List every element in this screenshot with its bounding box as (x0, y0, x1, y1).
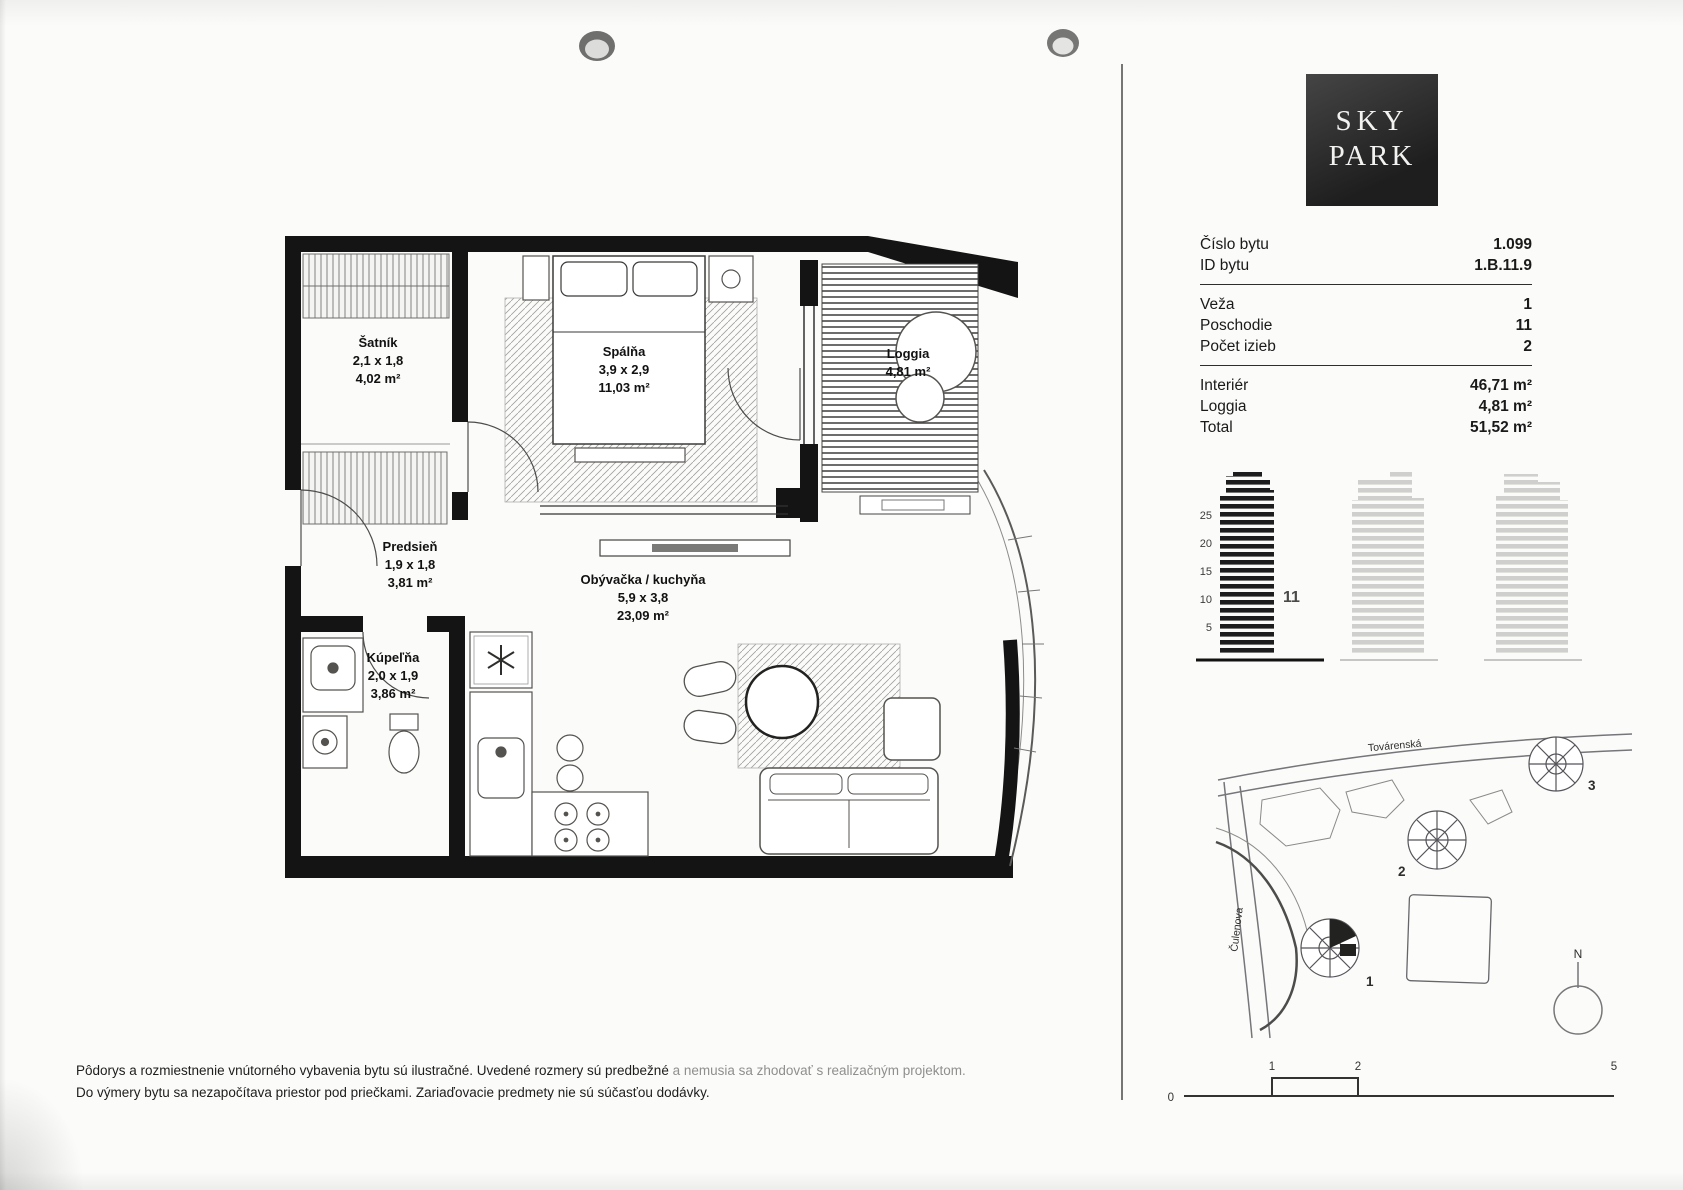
svg-text:3,86 m²: 3,86 m² (371, 686, 416, 701)
label-pocet-izieb: Počet izieb (1200, 336, 1276, 357)
label-poschodie: Poschodie (1200, 315, 1272, 336)
svg-text:Kúpeľňa: Kúpeľňa (367, 650, 420, 665)
map-tower-3-label: 3 (1588, 778, 1596, 793)
row-loggia: Loggia 4,81 m² (1200, 396, 1532, 417)
label-cislo-bytu: Číslo bytu (1200, 234, 1269, 255)
row-poschodie: Poschodie 11 (1200, 315, 1532, 336)
svg-text:Šatník: Šatník (358, 335, 398, 350)
elevation-axis: 25 20 15 10 5 (1200, 510, 1212, 634)
scale-bar-ticks: 0 1 2 5 (1168, 1061, 1618, 1104)
value-poschodie: 11 (1516, 315, 1532, 336)
floor-11-label: 11 (1283, 589, 1300, 606)
map-tower-1-label: 1 (1366, 974, 1374, 989)
svg-text:2: 2 (1355, 1061, 1361, 1073)
svg-text:1,9 x 1,8: 1,9 x 1,8 (385, 557, 436, 572)
label-veza: Veža (1200, 294, 1234, 315)
details-divider-1 (1200, 284, 1532, 285)
site-map: Továrenská Čulenova 1 2 3 N (1216, 734, 1632, 1038)
disclaimer-text: Pôdorys a rozmiestnenie vnútorného vybav… (76, 1060, 1136, 1104)
toilet (389, 731, 419, 773)
label-total: Total (1200, 417, 1233, 438)
label-loggia: Loggia (1200, 396, 1247, 417)
north-letter: N (1574, 947, 1583, 961)
svg-text:4,02 m²: 4,02 m² (356, 371, 401, 386)
value-pocet-izieb: 2 (1523, 336, 1532, 357)
svg-text:2,0 x 1,9: 2,0 x 1,9 (368, 668, 419, 683)
svg-text:0: 0 (1168, 1092, 1174, 1104)
curved-facade (974, 470, 1044, 868)
loggia-area (804, 264, 978, 514)
room-label-predsien: Predsieň 1,9 x 1,8 3,81 m² (383, 539, 438, 590)
toilet-tank (390, 714, 418, 730)
value-total: 51,52 m² (1470, 417, 1532, 438)
bedroom-furniture (505, 256, 790, 556)
room-label-kupelna: Kúpeľňa 2,0 x 1,9 3,86 m² (367, 650, 420, 701)
svg-text:1: 1 (1269, 1061, 1275, 1073)
tower-1-footprint (1301, 919, 1359, 977)
svg-text:20: 20 (1200, 538, 1212, 550)
details-divider-2 (1200, 365, 1532, 366)
disclaimer-line-1-faded: a nemusia sa zhodovať s realizačným proj… (673, 1063, 966, 1078)
value-cislo-bytu: 1.099 (1493, 234, 1532, 255)
value-interier: 46,71 m² (1470, 375, 1532, 396)
row-veza: Veža 1 (1200, 294, 1532, 315)
svg-text:Spálňa: Spálňa (603, 344, 646, 359)
svg-text:Obývačka / kuchyňa: Obývačka / kuchyňa (580, 572, 706, 587)
value-id-bytu: 1.B.11.9 (1474, 255, 1532, 276)
tower-2-footprint (1408, 811, 1466, 869)
hole-punch-left (579, 31, 615, 61)
logo-line-park: PARK (1306, 138, 1438, 174)
label-id-bytu: ID bytu (1200, 255, 1249, 276)
hole-punch-right (1047, 29, 1079, 57)
disclaimer-line-1: Pôdorys a rozmiestnenie vnútorného vybav… (76, 1060, 1136, 1082)
room-label-obyvacka: Obývačka / kuchyňa 5,9 x 3,8 23,09 m² (580, 572, 706, 623)
label-interier: Interiér (1200, 375, 1248, 396)
svg-text:Loggia: Loggia (887, 346, 930, 361)
svg-text:23,09 m²: 23,09 m² (617, 608, 670, 623)
north-compass: N (1554, 947, 1602, 1034)
dining-table (746, 666, 818, 738)
svg-text:5: 5 (1206, 622, 1212, 634)
dining-set (681, 644, 900, 768)
svg-text:4,81 m²: 4,81 m² (886, 364, 931, 379)
row-pocet-izieb: Počet izieb 2 (1200, 336, 1532, 357)
kitchen (470, 632, 648, 856)
logo-line-sky: SKY (1306, 104, 1438, 138)
svg-text:2,1 x 1,8: 2,1 x 1,8 (353, 353, 404, 368)
svg-text:25: 25 (1200, 510, 1212, 522)
row-cislo-bytu: Číslo bytu 1.099 (1200, 234, 1532, 255)
row-total: Total 51,52 m² (1200, 417, 1532, 438)
room-label-spalna: Spálňa 3,9 x 2,9 11,03 m² (598, 344, 650, 395)
svg-text:Predsieň: Predsieň (383, 539, 438, 554)
row-id-bytu: ID bytu 1.B.11.9 (1200, 255, 1532, 276)
disclaimer-line-2: Do výmery bytu sa nezapočítava priestor … (76, 1082, 1136, 1104)
row-interier: Interiér 46,71 m² (1200, 375, 1532, 396)
map-tower-2-label: 2 (1398, 864, 1406, 879)
tower-3-bar (1496, 474, 1568, 656)
svg-text:5,9 x 3,8: 5,9 x 3,8 (618, 590, 669, 605)
value-loggia: 4,81 m² (1479, 396, 1532, 417)
tower-1-bar (1220, 470, 1274, 656)
sky-park-logo: SKY PARK (1306, 74, 1438, 206)
svg-text:3,81 m²: 3,81 m² (388, 575, 433, 590)
tower-2-bar (1352, 472, 1424, 656)
large-building-footprint (1407, 895, 1492, 984)
svg-text:15: 15 (1200, 566, 1212, 578)
value-veza: 1 (1523, 294, 1532, 315)
disclaimer-line-1-main: Pôdorys a rozmiestnenie vnútorného vybav… (76, 1063, 673, 1078)
apartment-details: Číslo bytu 1.099 ID bytu 1.B.11.9 Veža 1… (1200, 234, 1532, 438)
scale-bar: 0 1 2 5 (1168, 1061, 1618, 1104)
street-label-tovarenska: Továrenská (1367, 738, 1422, 755)
room-label-satnik: Šatník 2,1 x 1,8 4,02 m² (353, 335, 404, 386)
svg-text:11,03 m²: 11,03 m² (598, 380, 650, 395)
wardrobes (301, 254, 450, 524)
svg-text:3,9 x 2,9: 3,9 x 2,9 (599, 362, 650, 377)
scanned-floorplan-sheet: Šatník 2,1 x 1,8 4,02 m² Spálňa 3,9 x 2,… (0, 0, 1683, 1190)
tower-elevation-chart: 25 20 15 10 5 11 (1196, 470, 1582, 660)
tower-3-footprint (1529, 737, 1583, 791)
svg-text:10: 10 (1200, 594, 1212, 606)
svg-text:5: 5 (1611, 1061, 1617, 1073)
